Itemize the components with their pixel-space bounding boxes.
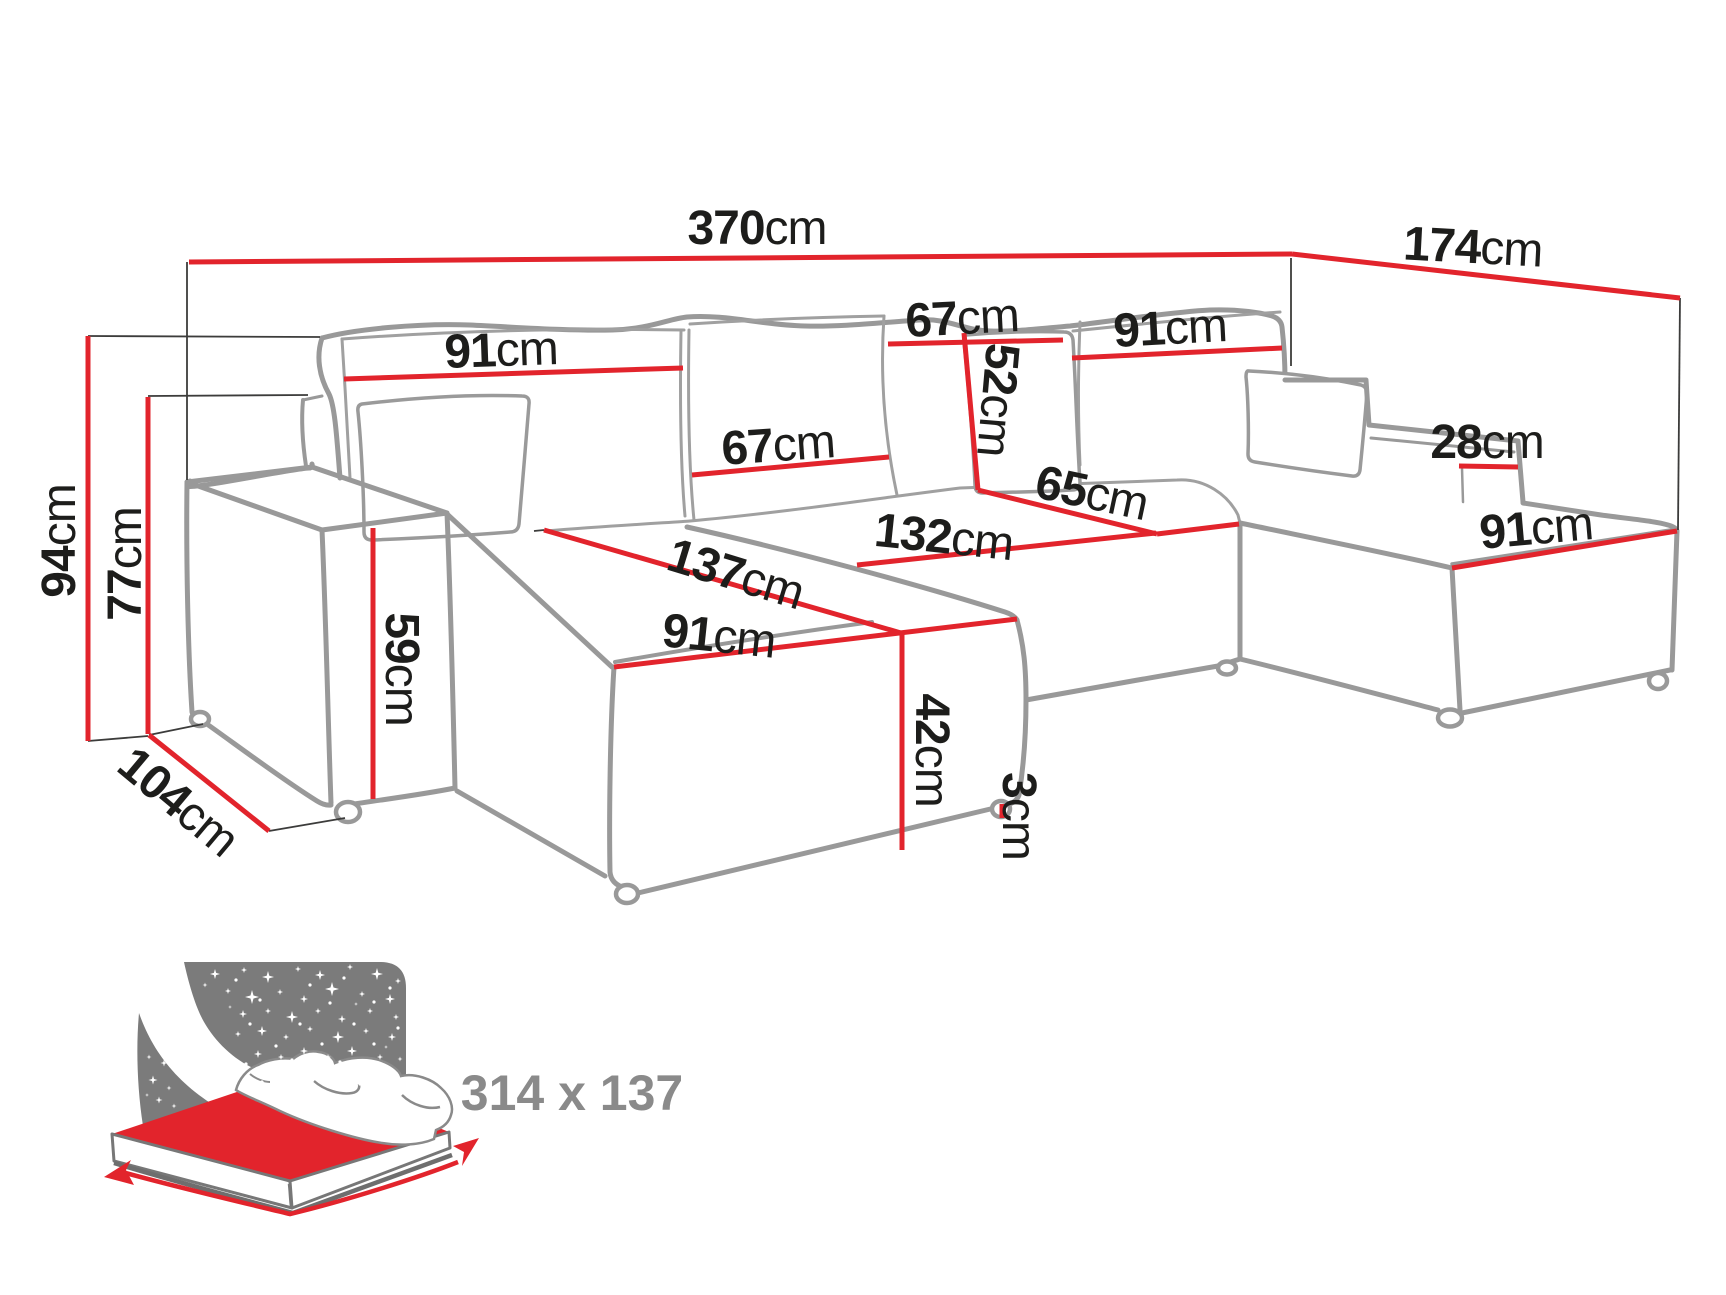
- svg-text:91cm: 91cm: [443, 322, 558, 379]
- svg-text:77cm: 77cm: [99, 507, 152, 620]
- svg-text:67cm: 67cm: [904, 289, 1020, 348]
- svg-text:67cm: 67cm: [720, 415, 837, 476]
- svg-text:94cm: 94cm: [33, 484, 86, 597]
- svg-text:91cm: 91cm: [1112, 299, 1228, 358]
- svg-text:28cm: 28cm: [1430, 416, 1543, 469]
- svg-text:91cm: 91cm: [1477, 497, 1595, 560]
- svg-text:3cm: 3cm: [992, 772, 1045, 860]
- svg-text:42cm: 42cm: [905, 693, 958, 806]
- svg-text:174cm: 174cm: [1402, 217, 1544, 277]
- svg-text:59cm: 59cm: [375, 612, 428, 725]
- svg-text:52cm: 52cm: [966, 341, 1029, 459]
- svg-text:370cm: 370cm: [687, 202, 826, 255]
- svg-text:314 x 137: 314 x 137: [461, 1065, 683, 1121]
